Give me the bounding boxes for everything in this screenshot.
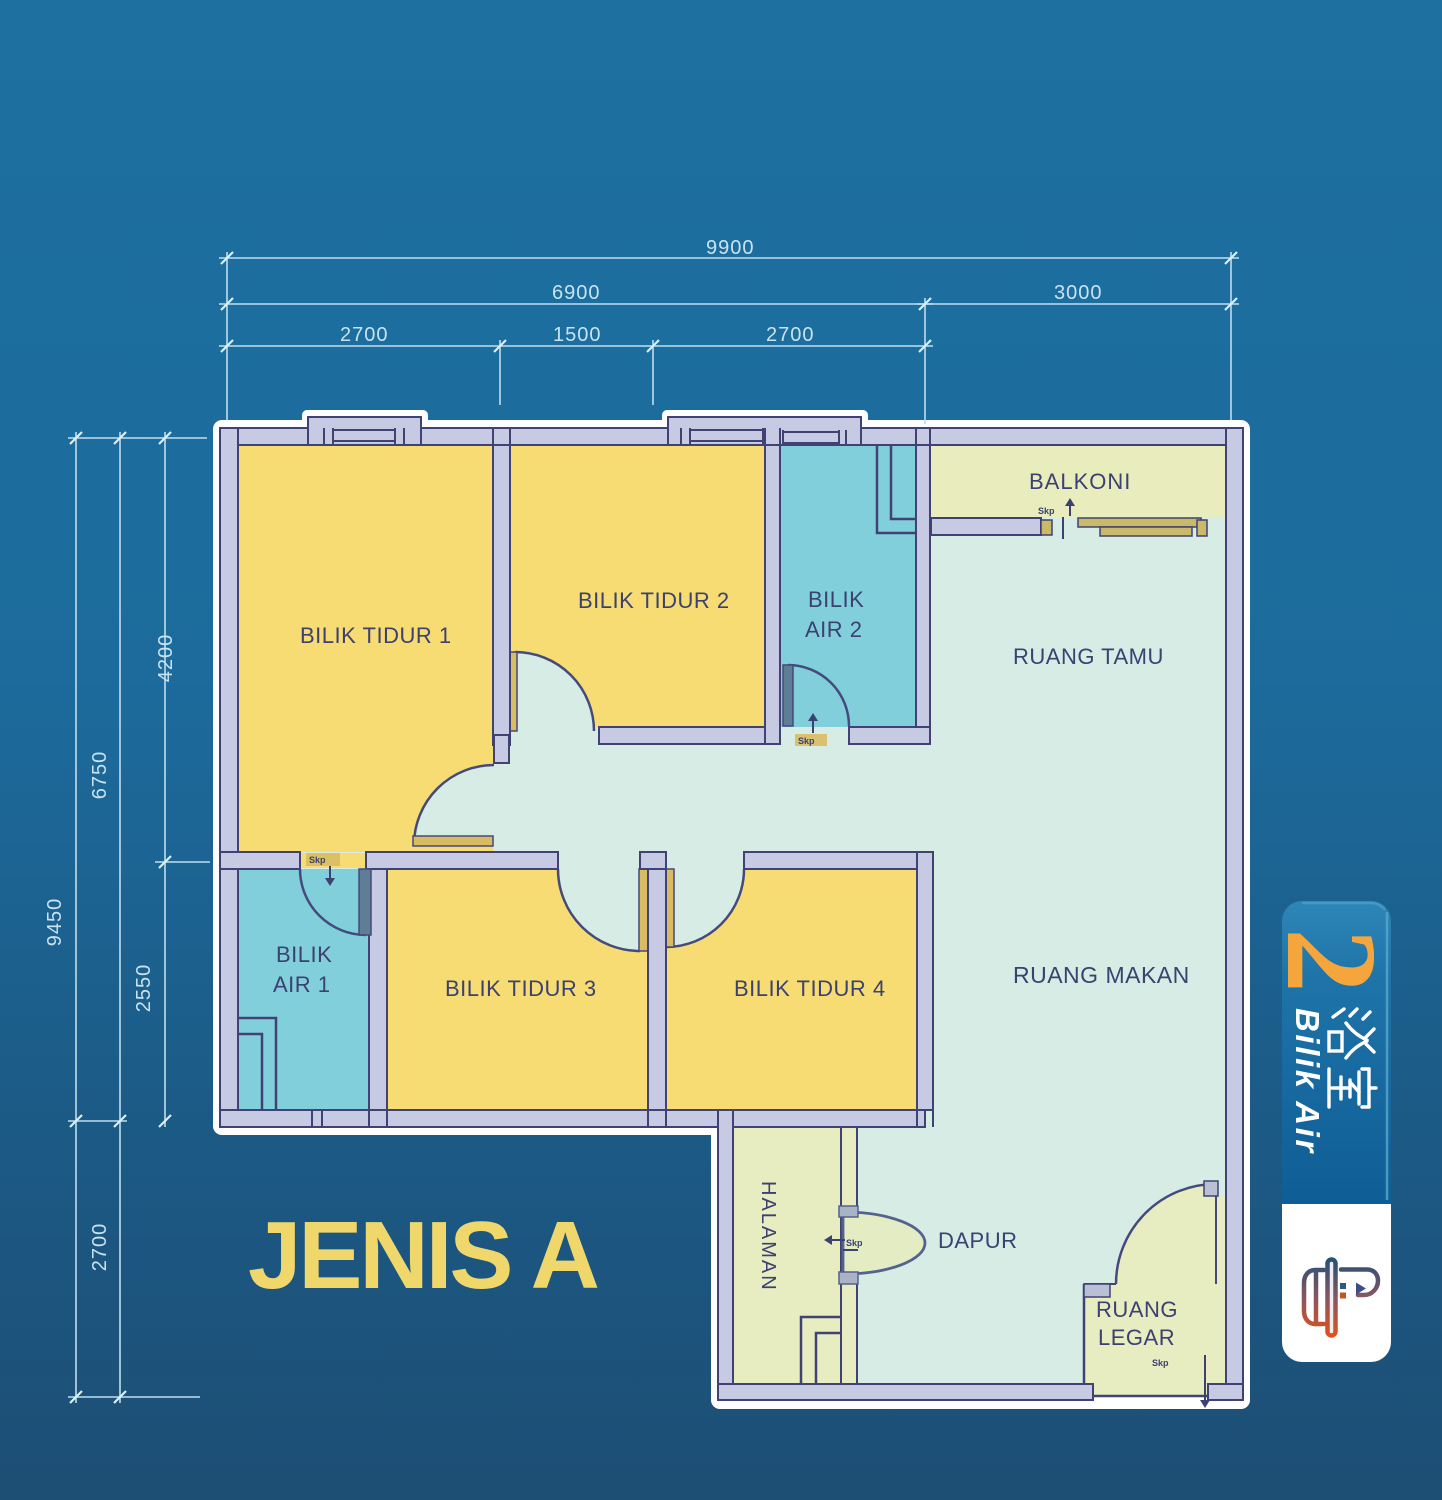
svg-text:9900: 9900 xyxy=(706,237,755,259)
svg-text:2: 2 xyxy=(1259,928,1403,993)
svg-text:HALAMAN: HALAMAN xyxy=(757,1181,779,1292)
svg-text:6900: 6900 xyxy=(552,282,601,304)
svg-text:4200: 4200 xyxy=(155,634,177,683)
svg-text:9450: 9450 xyxy=(44,898,66,947)
svg-text:Skp: Skp xyxy=(846,1238,863,1248)
svg-text:2700: 2700 xyxy=(89,1223,111,1272)
svg-text:1500: 1500 xyxy=(553,324,602,346)
svg-text:Bilik Air: Bilik Air xyxy=(1289,1008,1326,1155)
svg-text:BILIK: BILIK xyxy=(808,587,864,612)
svg-text:BILIK TIDUR 4: BILIK TIDUR 4 xyxy=(734,976,886,1001)
svg-text:2550: 2550 xyxy=(133,964,155,1013)
svg-text:Skp: Skp xyxy=(309,855,326,865)
svg-text:RUANG TAMU: RUANG TAMU xyxy=(1013,644,1164,669)
svg-text:JENIS A: JENIS A xyxy=(248,1202,598,1309)
svg-text:2700: 2700 xyxy=(766,324,815,346)
svg-text:6750: 6750 xyxy=(89,751,111,800)
svg-text:BILIK TIDUR 3: BILIK TIDUR 3 xyxy=(445,976,597,1001)
svg-text:Skp: Skp xyxy=(798,736,815,746)
svg-text:3000: 3000 xyxy=(1054,282,1103,304)
svg-text:BILIK: BILIK xyxy=(276,942,332,967)
svg-text:BILIK TIDUR 1: BILIK TIDUR 1 xyxy=(300,623,452,648)
svg-text:AIR 1: AIR 1 xyxy=(273,972,331,997)
svg-text:LEGAR: LEGAR xyxy=(1098,1325,1175,1350)
svg-text:BALKONI: BALKONI xyxy=(1029,469,1131,494)
svg-text:Skp: Skp xyxy=(1038,506,1055,516)
svg-text:2700: 2700 xyxy=(340,324,389,346)
svg-text:AIR 2: AIR 2 xyxy=(805,617,863,642)
svg-text:Skp: Skp xyxy=(1152,1358,1169,1368)
svg-text:RUANG: RUANG xyxy=(1096,1297,1178,1322)
svg-text:RUANG MAKAN: RUANG MAKAN xyxy=(1013,962,1190,988)
svg-text:DAPUR: DAPUR xyxy=(938,1228,1018,1253)
svg-text:BILIK TIDUR 2: BILIK TIDUR 2 xyxy=(578,588,730,613)
